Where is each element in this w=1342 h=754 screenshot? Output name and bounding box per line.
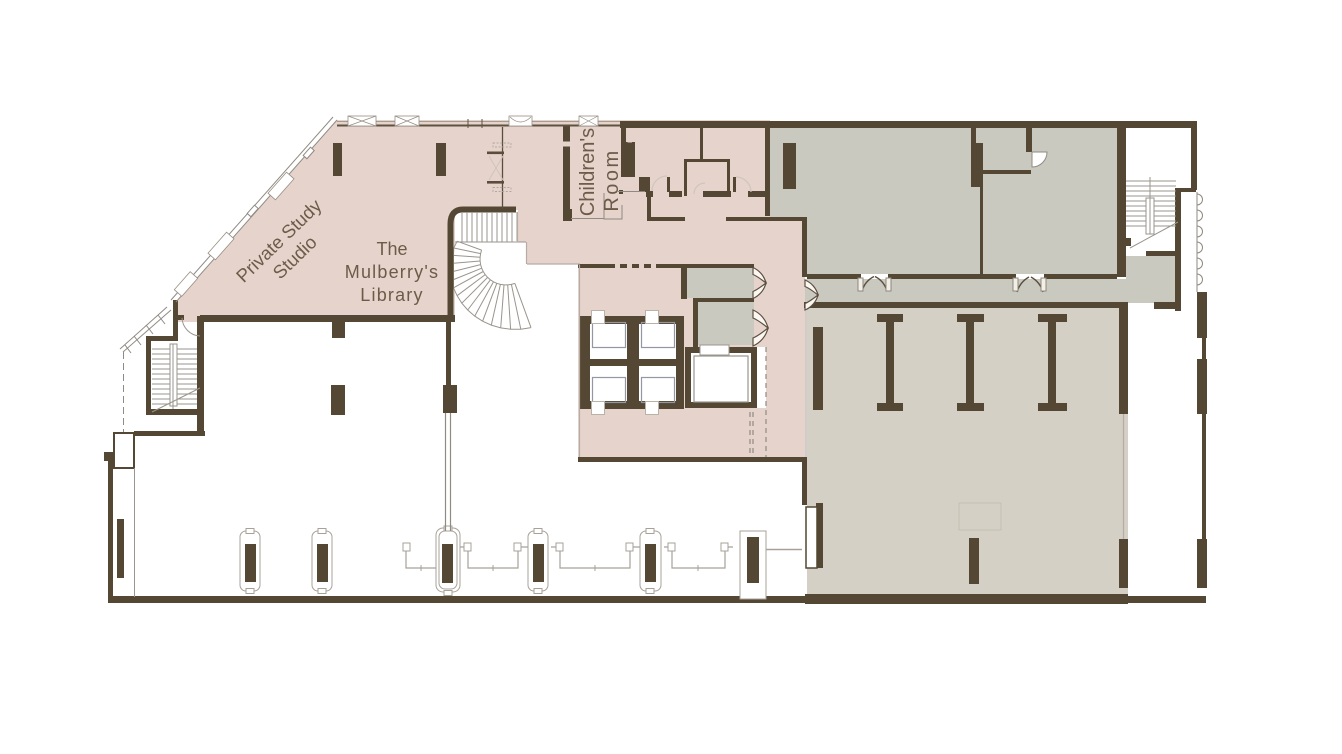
svg-text:Room: Room [601, 148, 623, 211]
svg-text:The: The [376, 239, 407, 259]
svg-text:Mulberry's: Mulberry's [345, 262, 439, 282]
svg-text:Children's: Children's [577, 128, 599, 216]
svg-text:Library: Library [360, 285, 423, 305]
